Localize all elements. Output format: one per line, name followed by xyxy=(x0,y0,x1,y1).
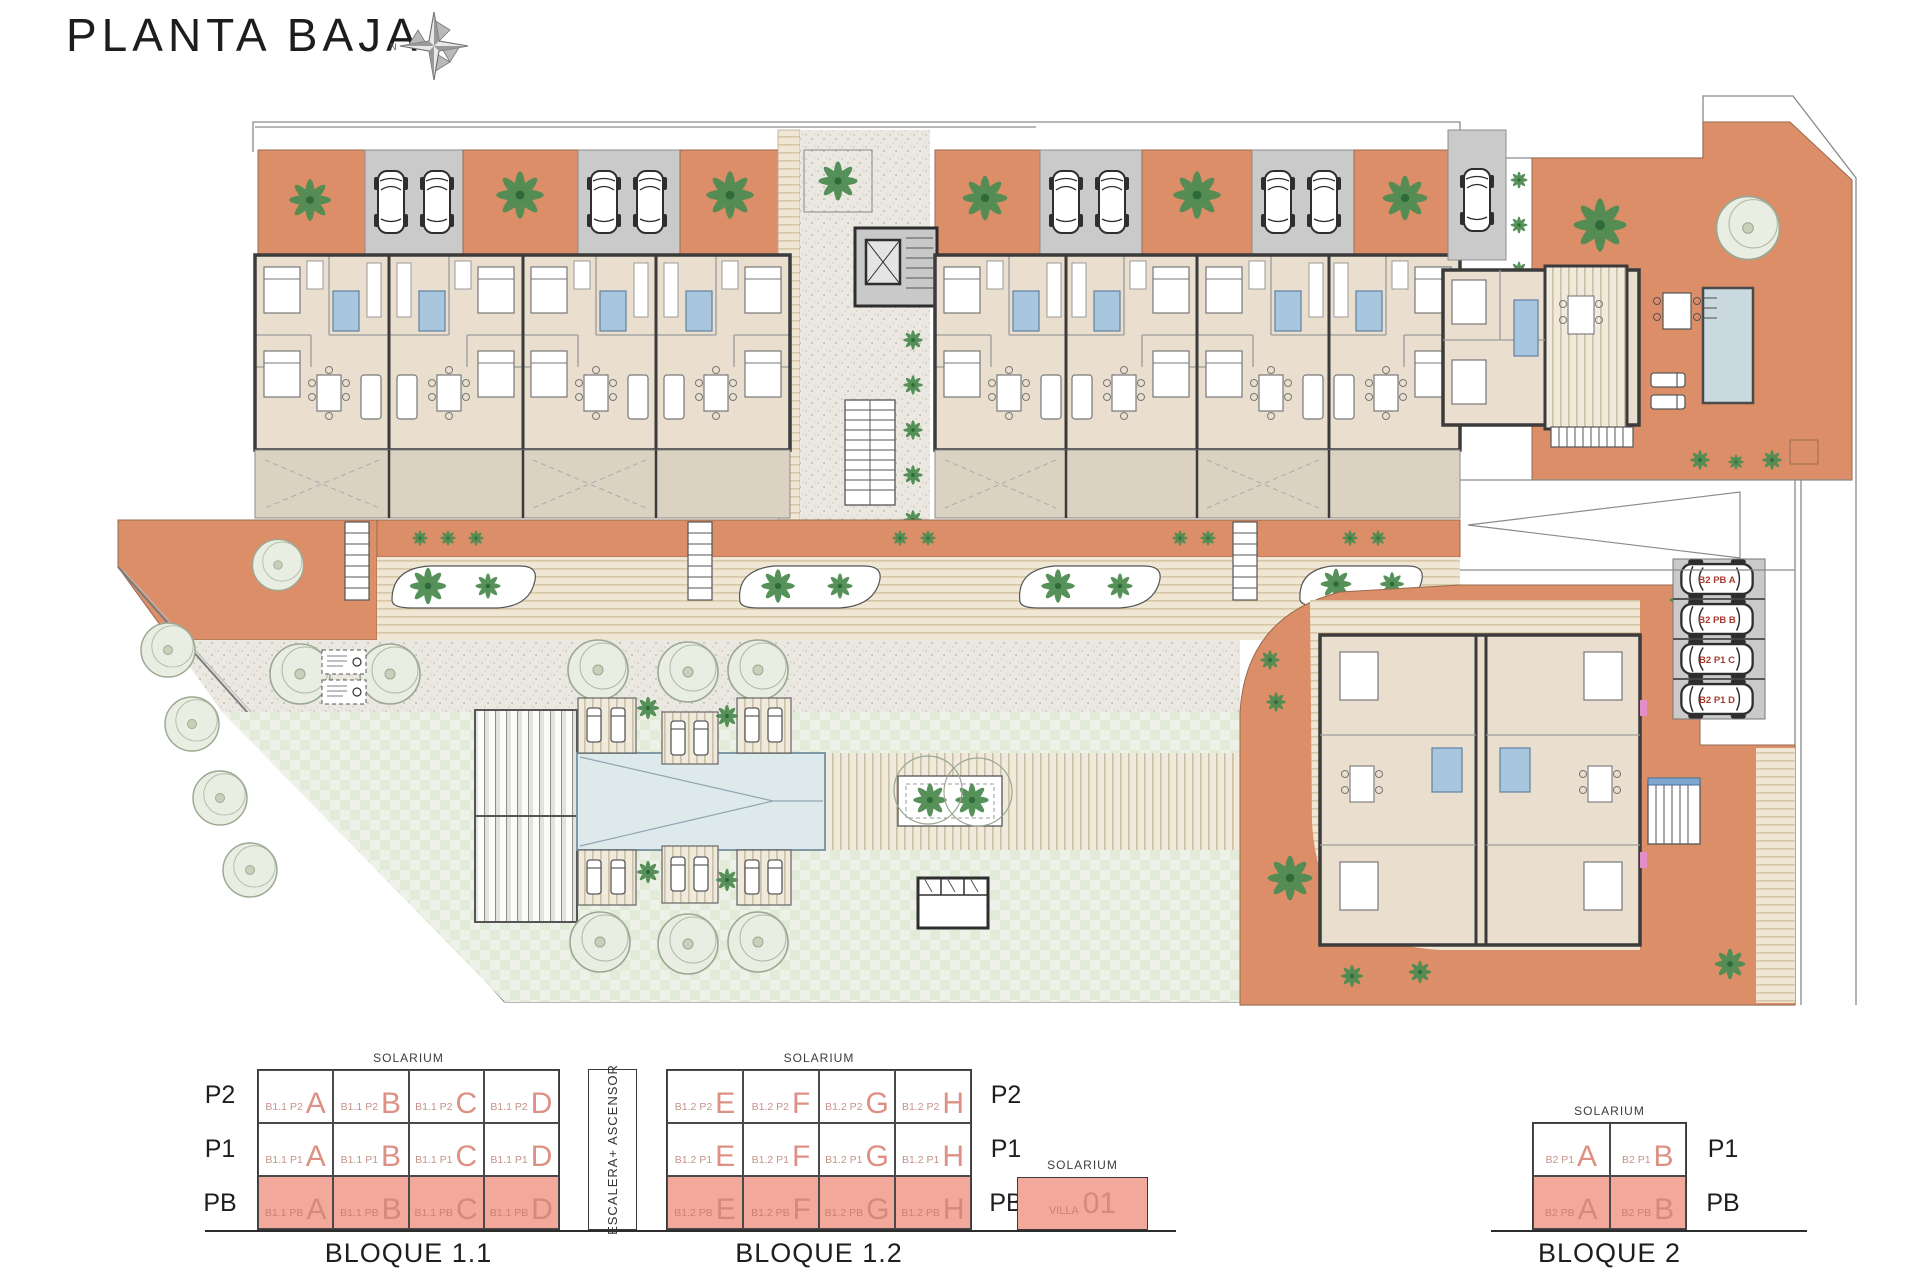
unit-cell: B1.1 P2A xyxy=(258,1070,333,1123)
unit-cell: B1.2 P2H xyxy=(895,1070,971,1123)
bloque11-caption: BLOQUE 1.1 xyxy=(257,1238,560,1269)
bloque12-caption: BLOQUE 1.2 xyxy=(666,1238,972,1269)
floor-label-p2: P2 xyxy=(192,1069,248,1123)
villa-pool xyxy=(1703,288,1753,403)
access-drive xyxy=(1460,480,1852,570)
unit-cell: B1.2 P1H xyxy=(895,1123,971,1176)
door-marker xyxy=(1640,852,1647,868)
parking-label: B2 P1 C xyxy=(1699,655,1735,666)
pool-wc-building xyxy=(918,878,988,928)
bloque11-table: B1.1 P2A B1.1 P2B B1.1 P2C B1.1 P2D B1.1… xyxy=(257,1069,560,1230)
bloque12-gardens-garages xyxy=(935,150,1460,255)
bloque11-floor-labels: P2 P1 PB xyxy=(192,1069,248,1230)
unit-cell: B1.2 P1G xyxy=(819,1123,895,1176)
unit-cell: B1.2 P2G xyxy=(819,1070,895,1123)
garden-stairs xyxy=(688,522,712,600)
car-icon xyxy=(1460,169,1494,231)
orange-band xyxy=(377,520,1460,557)
bloque2-table: B2 P1A B2 P1B B2 PBA B2 PBB xyxy=(1532,1122,1687,1230)
unit-cell: B1.1 P2C xyxy=(409,1070,484,1123)
sunbed-platform xyxy=(737,850,791,905)
planting-bed xyxy=(392,566,535,608)
bloque2-caption: BLOQUE 2 xyxy=(1532,1238,1687,1269)
parking-label: B2 PB A xyxy=(1698,575,1735,586)
unit-cell: B1.2 PBF xyxy=(743,1176,819,1229)
exterior-stairs xyxy=(845,400,895,505)
bloque2-floor-labels: P1 PB xyxy=(1695,1122,1751,1230)
floor-label-pb: PB xyxy=(1695,1176,1751,1230)
unit-cell: B1.1 P1C xyxy=(409,1123,484,1176)
car-icon xyxy=(420,171,454,233)
planting-bed xyxy=(740,566,881,608)
sunbed-platform xyxy=(578,850,636,905)
unit-cell: B1.2 PBG xyxy=(819,1176,895,1229)
floor-label-p1: P1 xyxy=(1695,1122,1751,1176)
garden-stairs xyxy=(1233,522,1257,600)
car-icon xyxy=(1307,171,1341,233)
car-icon xyxy=(374,171,408,233)
unit-cell: B2 P1B xyxy=(1610,1123,1687,1176)
sunbed-platform xyxy=(737,698,791,753)
villa-building xyxy=(1443,266,1639,429)
villa-cell: VILLA 01 xyxy=(1017,1177,1148,1230)
bloque12-building xyxy=(935,255,1460,518)
side-path xyxy=(1756,748,1795,1003)
bloque11-building xyxy=(255,255,790,518)
escalera-label: ESCALERA+ ASCENSOR xyxy=(605,1064,620,1235)
unit-cell: B1.1 P2D xyxy=(484,1070,559,1123)
escalera-box: ESCALERA+ ASCENSOR xyxy=(588,1069,637,1230)
floor-label-p2: P2 xyxy=(978,1069,1034,1123)
unit-cell: B1.1 PBB xyxy=(333,1176,408,1229)
deck-band xyxy=(825,753,1240,850)
bloque12-solarium-label: SOLARIUM xyxy=(666,1051,972,1065)
parking-label: B2 P1 D xyxy=(1699,695,1735,706)
unit-cell: B1.2 P1E xyxy=(667,1123,743,1176)
bloque12-table: B1.2 P2E B1.2 P2F B1.2 P2G B1.2 P2H B1.2… xyxy=(666,1069,972,1230)
unit-cell: B1.1 PBC xyxy=(409,1176,484,1229)
left-orange-garden xyxy=(118,520,377,640)
villa-solarium-label: SOLARIUM xyxy=(1017,1158,1148,1172)
sunbed-platform xyxy=(578,698,636,753)
car-icon xyxy=(1049,171,1083,233)
pergola xyxy=(475,710,577,922)
parking-stalls: B2 PB A B2 PB B B2 P1 C B2 P1 D xyxy=(1673,559,1765,719)
car-icon xyxy=(1261,171,1295,233)
bloque2-building xyxy=(1320,635,1647,945)
parking-label: B2 PB B xyxy=(1698,615,1736,626)
garden-strip xyxy=(118,520,1460,640)
unit-cell: B1.1 PBD xyxy=(484,1176,559,1229)
villa-area xyxy=(1443,122,1852,570)
unit-cell: B2 PBA xyxy=(1533,1176,1610,1229)
unit-cell: B1.1 P1B xyxy=(333,1123,408,1176)
unit-cell: B1.2 PBH xyxy=(895,1176,971,1229)
legend-ground-line xyxy=(205,1230,1176,1232)
floor-plan-page: PLANTA BAJA N xyxy=(0,0,1920,1280)
unit-cell: B1.1 PBA xyxy=(258,1176,333,1229)
bloque2-solarium-label: SOLARIUM xyxy=(1532,1104,1687,1118)
villa-prefix: VILLA xyxy=(1049,1205,1079,1217)
site-plan: B2 PB A B2 PB B B2 P1 C B2 P1 D xyxy=(0,0,1920,1050)
floor-label-p1: P1 xyxy=(192,1123,248,1177)
car-icon xyxy=(587,171,621,233)
utility-marker xyxy=(322,680,366,704)
car-icon xyxy=(633,171,667,233)
utility-marker xyxy=(322,650,366,674)
unit-cell: B1.2 PBE xyxy=(667,1176,743,1229)
villa-number: 01 xyxy=(1083,1187,1116,1221)
villa-stairs xyxy=(1551,427,1633,447)
garden-stairs xyxy=(345,522,369,600)
unit-cell: B1.1 P1A xyxy=(258,1123,333,1176)
sunbed-platform xyxy=(662,846,718,903)
bloque2-stairs xyxy=(1648,778,1700,844)
floor-label-pb: PB xyxy=(192,1176,248,1230)
swimming-pool xyxy=(577,753,825,850)
unit-cell: B2 P1A xyxy=(1533,1123,1610,1176)
car-icon xyxy=(1095,171,1129,233)
unit-cell: B1.2 P2F xyxy=(743,1070,819,1123)
bloque11-solarium-label: SOLARIUM xyxy=(257,1051,560,1065)
stair-elevator-shaft xyxy=(855,228,937,306)
unit-cell: B2 PBB xyxy=(1610,1176,1687,1229)
door-marker xyxy=(1640,700,1647,716)
unit-cell: B1.1 P1D xyxy=(484,1123,559,1176)
planting-bed xyxy=(1020,566,1161,608)
legend-ground-line xyxy=(1491,1230,1807,1232)
unit-cell: B1.1 P2B xyxy=(333,1070,408,1123)
unit-cell: B1.2 P1F xyxy=(743,1123,819,1176)
unit-cell: B1.2 P2E xyxy=(667,1070,743,1123)
sunbed-platform xyxy=(662,712,718,764)
